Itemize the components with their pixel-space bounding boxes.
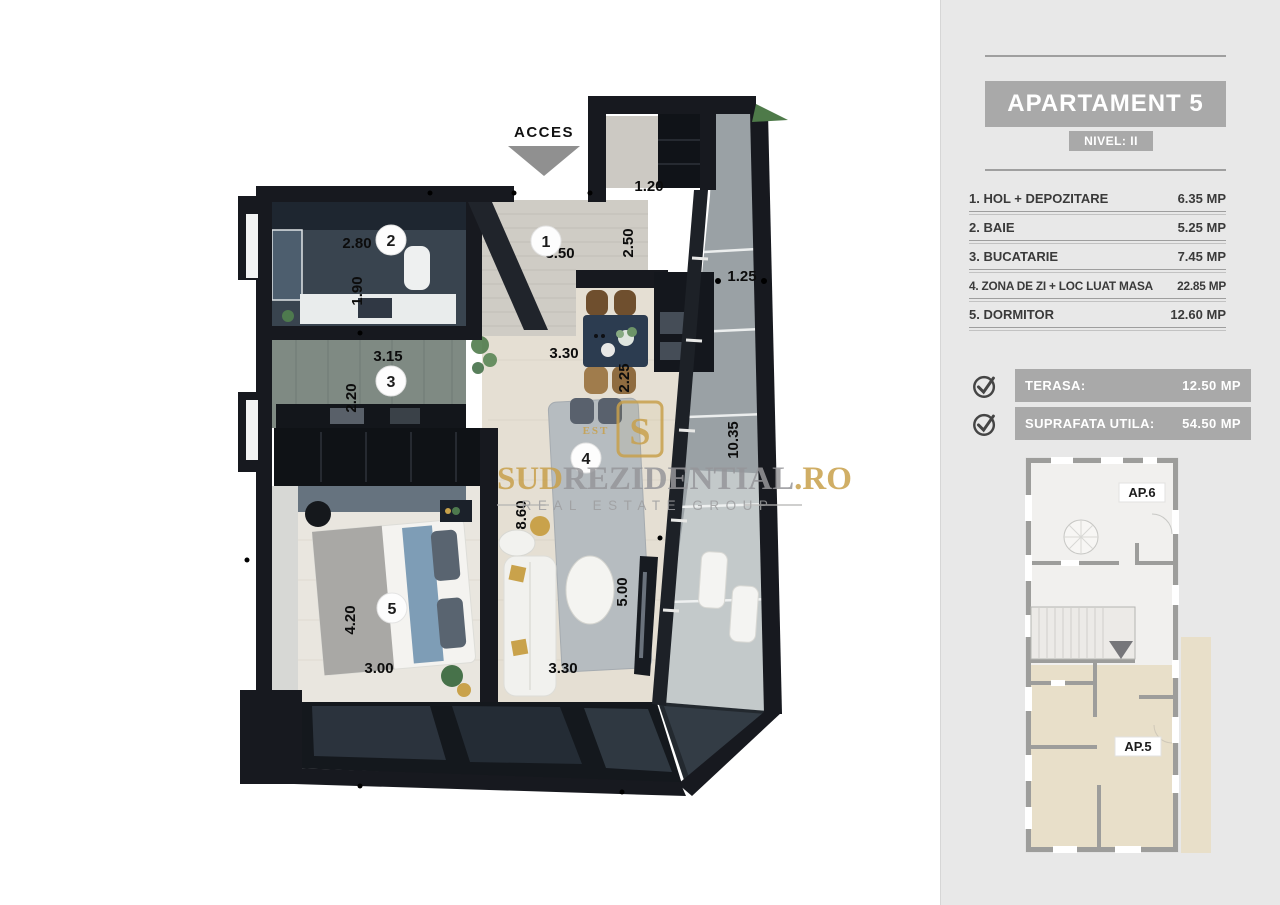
room-marker-2: 2	[376, 225, 406, 255]
check-icon	[971, 372, 999, 400]
dimension-label: 3.30	[549, 345, 578, 362]
room-label: 5. DORMITOR	[969, 307, 1054, 322]
entry-closet-floor	[604, 114, 714, 188]
svg-text:AP.5: AP.5	[1124, 739, 1151, 754]
svg-text:3: 3	[387, 374, 396, 391]
room-area: 7.45 MP	[1178, 249, 1226, 264]
dimension-label: 2.20	[343, 383, 360, 412]
room-area: 5.25 MP	[1178, 220, 1226, 235]
ap5-terrace-strip	[1181, 637, 1211, 853]
dimension-label: 1.20	[634, 178, 663, 195]
corner-plant	[752, 104, 788, 122]
room-2-bath-floor	[272, 200, 466, 326]
summary-label: SUPRAFATA UTILA:	[1025, 416, 1155, 431]
unit-label-ap6: AP.6	[1119, 483, 1165, 502]
room-area: 6.35 MP	[1178, 191, 1226, 206]
summary-value: 54.50 MP	[1182, 416, 1241, 431]
room-label: 1. HOL + DEPOZITARE	[969, 191, 1108, 206]
gold-lamp	[530, 516, 550, 536]
level-badge: NIVEL: II	[1069, 131, 1153, 151]
room-area: 12.60 MP	[1170, 307, 1226, 322]
room-3-kitchen-floor	[272, 340, 466, 430]
dimension-label: 2.25	[616, 363, 633, 392]
mini-floor-plan: AP.6 AP.5	[1023, 455, 1213, 855]
room-list-item: 1. HOL + DEPOZITARE 6.35 MP	[969, 186, 1226, 211]
dimension-label: 3.00	[364, 660, 393, 677]
acces-label: ACCES	[514, 124, 574, 141]
pouf	[305, 501, 331, 527]
kitchen-counter	[276, 404, 466, 430]
dimension-label: 10.35	[725, 421, 742, 459]
room-list-item: 2. BAIE 5.25 MP	[969, 215, 1226, 240]
terrace-box: TERASA: 12.50 MP	[1015, 369, 1251, 402]
dining-table	[583, 315, 648, 367]
room-label: 2. BAIE	[969, 220, 1015, 235]
mini-spiral-stair	[1064, 520, 1098, 554]
room-list-item: 3. BUCATARIE 7.45 MP	[969, 244, 1226, 269]
dimension-label: 2.50	[620, 228, 637, 257]
terrace-summary: TERASA: 12.50 MP	[971, 369, 1251, 402]
svg-text:1: 1	[542, 234, 551, 251]
side-table	[499, 530, 535, 556]
svg-text:2: 2	[387, 233, 396, 250]
dimension-label: 1.25	[727, 268, 756, 285]
room-list-item: 5. DORMITOR 12.60 MP	[969, 302, 1226, 327]
check-icon	[971, 410, 999, 438]
mini-stair	[1031, 607, 1135, 659]
dimension-label: 4.20	[342, 605, 359, 634]
room-area: 22.85 MP	[1177, 279, 1226, 293]
apartment-title: APARTAMENT 5	[985, 81, 1226, 127]
dimension-label: 3.30	[548, 660, 577, 677]
bath-plant	[282, 310, 294, 322]
logo-letter: S	[629, 411, 650, 453]
shower	[272, 230, 302, 300]
dimension-label: 1.90	[349, 276, 366, 305]
usable-area-box: SUPRAFATA UTILA: 54.50 MP	[1015, 407, 1251, 440]
room-label: 4. ZONA DE ZI + LOC LUAT MASA	[969, 279, 1153, 293]
nightstand	[440, 500, 472, 522]
watermark-tagline: REAL ESTATE GROUP	[522, 498, 775, 513]
svg-text:5: 5	[388, 601, 397, 618]
room-list-item: 4. ZONA DE ZI + LOC LUAT MASA 22.85 MP	[969, 273, 1226, 298]
room-label: 3. BUCATARIE	[969, 249, 1058, 264]
row-divider	[969, 327, 1226, 331]
watermark-wordmark: SUDREZIDENTIAL.RO	[497, 461, 852, 497]
coffee-table	[566, 556, 614, 624]
dimension-label: 3.15	[373, 348, 402, 365]
floor-plan-render: ACCES 1.20 2.50 3.50 2.80 1.90 1.25 3.15…	[0, 0, 940, 905]
page: ACCES 1.20 2.50 3.50 2.80 1.90 1.25 3.15…	[0, 0, 1280, 905]
logo-est-label: EST	[583, 425, 610, 437]
dimension-label: 2.80	[342, 235, 371, 252]
room-marker-1: 1	[531, 226, 561, 256]
usable-area-summary: SUPRAFATA UTILA: 54.50 MP	[971, 407, 1251, 440]
summary-value: 12.50 MP	[1182, 378, 1241, 393]
room-list: 1. HOL + DEPOZITARE 6.35 MP 2. BAIE 5.25…	[969, 186, 1226, 331]
acces-arrow-icon	[508, 146, 580, 176]
toilet	[404, 246, 430, 290]
wardrobe	[274, 428, 482, 486]
divider-line	[985, 55, 1226, 57]
info-panel: APARTAMENT 5 NIVEL: II 1. HOL + DEPOZITA…	[940, 0, 1280, 905]
summary-label: TERASA:	[1025, 378, 1086, 393]
divider-line	[985, 169, 1226, 171]
svg-text:AP.6: AP.6	[1128, 485, 1155, 500]
unit-label-ap5: AP.5	[1115, 737, 1161, 756]
room-marker-5: 5	[377, 593, 407, 623]
floor-plan-area: ACCES 1.20 2.50 3.50 2.80 1.90 1.25 3.15…	[0, 0, 940, 905]
room-marker-3: 3	[376, 366, 406, 396]
dimension-label: 5.00	[614, 577, 631, 606]
